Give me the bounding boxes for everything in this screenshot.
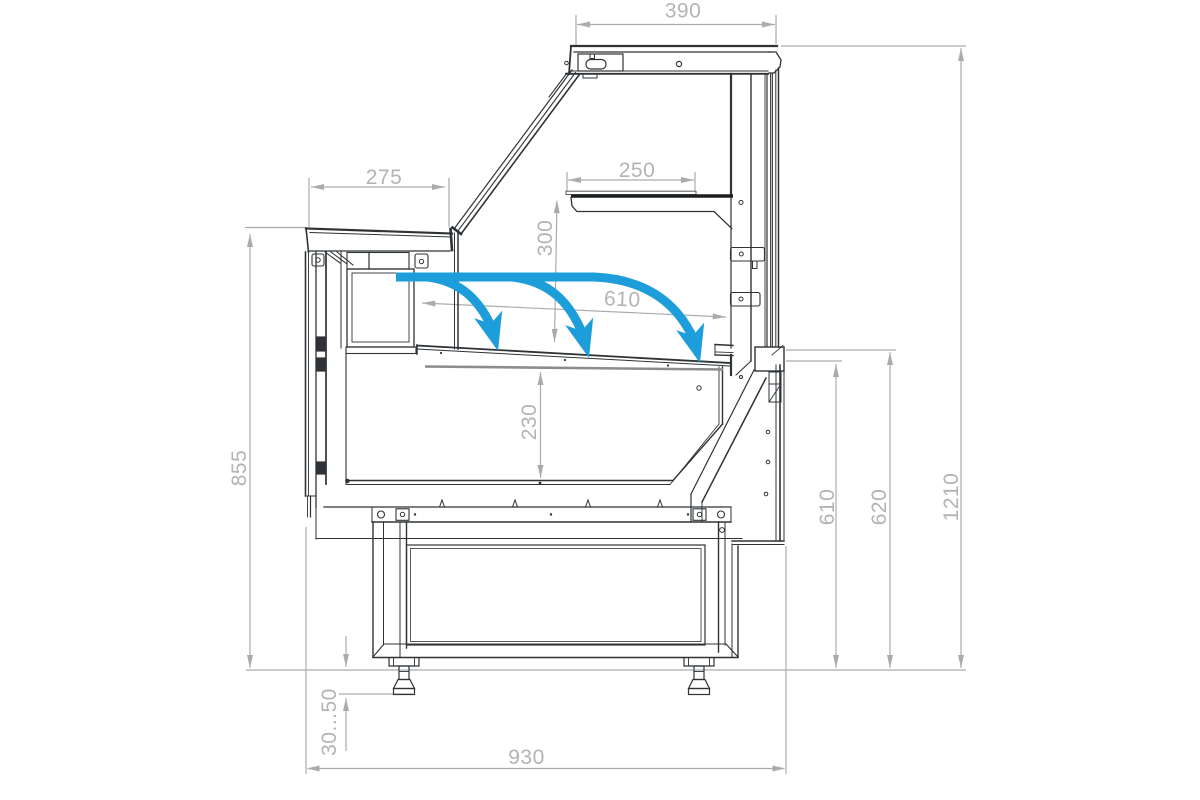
svg-text:250: 250: [619, 159, 656, 182]
svg-text:390: 390: [665, 0, 702, 23]
svg-text:930: 930: [508, 746, 545, 769]
svg-text:275: 275: [366, 166, 403, 189]
svg-text:1210: 1210: [940, 473, 963, 522]
svg-text:230: 230: [518, 404, 541, 441]
svg-text:855: 855: [228, 450, 251, 487]
svg-text:30...50: 30...50: [318, 688, 341, 756]
svg-text:300: 300: [534, 220, 557, 257]
svg-text:610: 610: [604, 287, 642, 312]
svg-text:620: 620: [868, 489, 891, 526]
svg-text:610: 610: [816, 489, 839, 526]
